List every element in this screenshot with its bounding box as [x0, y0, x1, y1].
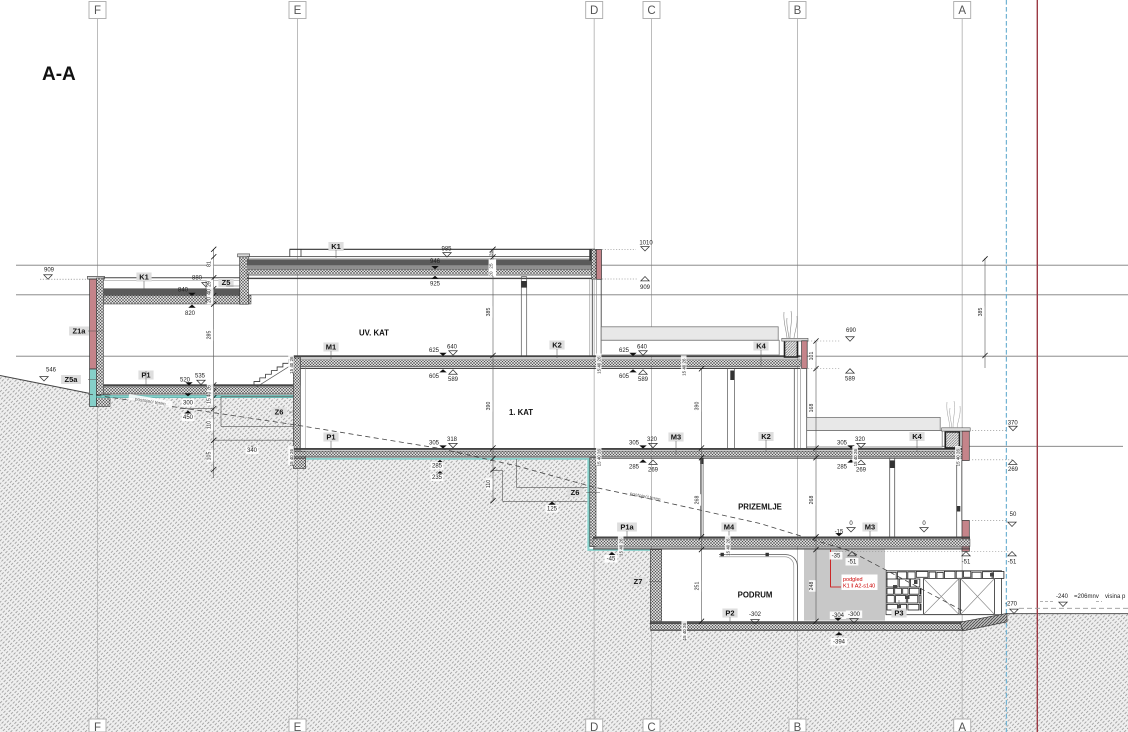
svg-text:390: 390 — [694, 402, 700, 411]
svg-text:K2: K2 — [552, 341, 562, 350]
svg-text:40: 40 — [207, 289, 213, 295]
svg-text:285: 285 — [432, 464, 443, 470]
svg-text:625: 625 — [619, 348, 630, 354]
svg-text:40: 40 — [726, 544, 731, 549]
svg-text:-302: -302 — [749, 612, 762, 618]
svg-text:15: 15 — [956, 461, 961, 466]
svg-text:690: 690 — [846, 328, 857, 334]
svg-text:268: 268 — [809, 496, 815, 505]
svg-text:269: 269 — [856, 467, 867, 473]
svg-text:15: 15 — [619, 550, 624, 555]
svg-text:40: 40 — [289, 362, 294, 367]
svg-text:PODRUM: PODRUM — [738, 591, 773, 600]
svg-text:589: 589 — [845, 377, 856, 383]
svg-text:M1: M1 — [326, 343, 336, 352]
svg-text:625: 625 — [429, 348, 440, 354]
svg-text:26: 26 — [597, 449, 602, 454]
svg-text:-300: -300 — [848, 612, 861, 618]
svg-text:110: 110 — [207, 421, 213, 429]
svg-text:110: 110 — [486, 480, 492, 488]
svg-text:=206mnv: =206mnv — [1074, 594, 1099, 600]
svg-text:305: 305 — [837, 441, 848, 447]
svg-text:visina p: visina p — [1105, 594, 1126, 600]
svg-text:1. KAT: 1. KAT — [509, 408, 533, 417]
svg-text:105: 105 — [207, 452, 213, 461]
svg-text:40: 40 — [289, 455, 294, 460]
svg-text:P2: P2 — [725, 609, 734, 618]
svg-text:605: 605 — [619, 374, 630, 380]
svg-text:269: 269 — [1008, 467, 1019, 473]
svg-text:26: 26 — [682, 623, 687, 628]
svg-text:P1: P1 — [326, 433, 335, 442]
svg-text:-45: -45 — [607, 557, 616, 563]
svg-text:K1: K1 — [331, 242, 341, 251]
svg-text:15: 15 — [207, 398, 213, 404]
svg-text:15: 15 — [289, 461, 294, 466]
svg-text:385: 385 — [486, 308, 492, 317]
svg-text:B: B — [794, 5, 802, 17]
svg-text:1010: 1010 — [639, 241, 653, 247]
svg-text:E: E — [294, 722, 302, 732]
svg-text:C: C — [647, 5, 655, 17]
svg-text:15: 15 — [289, 368, 294, 373]
svg-text:15: 15 — [682, 635, 687, 640]
svg-text:-394: -394 — [833, 640, 846, 646]
svg-text:26: 26 — [853, 449, 858, 454]
svg-text:251: 251 — [694, 582, 700, 591]
svg-text:-35: -35 — [832, 554, 841, 560]
svg-text:K1 ‖ A2-s140: K1 ‖ A2-s140 — [843, 584, 875, 590]
svg-text:K4: K4 — [912, 432, 922, 441]
svg-text:909: 909 — [44, 268, 55, 274]
svg-text:podgled: podgled — [843, 577, 863, 583]
svg-text:820: 820 — [185, 311, 196, 317]
svg-text:15: 15 — [853, 461, 858, 466]
svg-text:26: 26 — [956, 449, 961, 454]
svg-text:D: D — [590, 5, 598, 17]
svg-text:50: 50 — [1010, 512, 1017, 518]
svg-text:-51: -51 — [962, 560, 971, 566]
svg-text:Z1a: Z1a — [73, 327, 87, 336]
svg-text:40: 40 — [956, 455, 961, 460]
svg-text:26: 26 — [619, 538, 624, 543]
svg-text:-51: -51 — [1008, 560, 1017, 566]
svg-text:PRIZEMLJE: PRIZEMLJE — [738, 503, 782, 512]
svg-text:A-A: A-A — [42, 64, 76, 85]
svg-text:318: 318 — [447, 437, 458, 443]
svg-text:320: 320 — [647, 437, 658, 443]
svg-text:15: 15 — [682, 370, 687, 375]
svg-text:20: 20 — [207, 297, 213, 303]
svg-text:269: 269 — [648, 467, 659, 473]
svg-text:535: 535 — [195, 374, 206, 380]
svg-text:840: 840 — [178, 288, 189, 294]
svg-text:Z7: Z7 — [634, 577, 643, 586]
svg-text:925: 925 — [430, 282, 441, 288]
svg-text:640: 640 — [637, 344, 648, 350]
svg-text:Z5a: Z5a — [65, 375, 79, 384]
svg-text:40: 40 — [619, 544, 624, 549]
svg-text:15: 15 — [597, 368, 602, 373]
svg-text:M3: M3 — [671, 433, 681, 442]
svg-text:305: 305 — [429, 441, 440, 447]
svg-text:A: A — [958, 5, 966, 17]
svg-text:K2: K2 — [761, 432, 771, 441]
svg-text:909: 909 — [640, 285, 651, 291]
svg-text:370: 370 — [1008, 421, 1019, 427]
svg-text:Z6: Z6 — [275, 408, 284, 417]
svg-text:E: E — [294, 5, 302, 17]
svg-text:29: 29 — [207, 281, 213, 287]
svg-text:946: 946 — [430, 259, 441, 265]
svg-text:589: 589 — [448, 377, 459, 383]
svg-text:26: 26 — [488, 251, 493, 257]
svg-text:285: 285 — [629, 464, 640, 470]
svg-text:248: 248 — [809, 582, 815, 591]
svg-text:880: 880 — [192, 276, 203, 282]
svg-text:300: 300 — [183, 401, 194, 407]
svg-text:390: 390 — [486, 402, 492, 411]
svg-text:K4: K4 — [756, 342, 766, 351]
svg-text:40: 40 — [207, 392, 213, 398]
svg-text:M4: M4 — [724, 523, 735, 532]
svg-text:40: 40 — [597, 455, 602, 460]
svg-text:268: 268 — [694, 496, 700, 505]
svg-text:125: 125 — [547, 507, 558, 513]
svg-text:F: F — [94, 5, 101, 17]
svg-text:285: 285 — [207, 331, 213, 340]
svg-text:P1a: P1a — [620, 523, 634, 532]
svg-text:101: 101 — [809, 352, 815, 361]
svg-text:546: 546 — [46, 368, 57, 374]
svg-text:26: 26 — [289, 449, 294, 454]
svg-text:26: 26 — [289, 356, 294, 361]
svg-text:-51: -51 — [848, 560, 857, 566]
svg-text:K1: K1 — [139, 273, 149, 282]
svg-text:985: 985 — [441, 247, 452, 253]
svg-text:40: 40 — [853, 455, 858, 460]
svg-text:40: 40 — [682, 629, 687, 634]
svg-text:605: 605 — [429, 374, 440, 380]
svg-text:D: D — [590, 722, 598, 732]
svg-text:235: 235 — [432, 475, 443, 481]
svg-text:450: 450 — [183, 415, 194, 421]
svg-text:385: 385 — [978, 308, 984, 317]
svg-text:305: 305 — [629, 441, 640, 447]
svg-text:F: F — [94, 722, 101, 732]
svg-text:40: 40 — [682, 364, 687, 369]
svg-text:589: 589 — [638, 377, 649, 383]
svg-text:340: 340 — [247, 448, 258, 454]
svg-text:20: 20 — [488, 271, 493, 277]
svg-text:A: A — [958, 722, 966, 732]
svg-text:B: B — [794, 722, 802, 732]
svg-text:25: 25 — [488, 263, 493, 269]
svg-text:P3: P3 — [894, 609, 903, 618]
svg-text:-270: -270 — [1005, 602, 1018, 608]
svg-text:26: 26 — [726, 538, 731, 543]
svg-text:168: 168 — [809, 404, 815, 413]
svg-text:285: 285 — [837, 464, 848, 470]
svg-text:M3: M3 — [865, 523, 875, 532]
svg-text:UV. KAT: UV. KAT — [359, 329, 389, 338]
svg-text:26: 26 — [682, 358, 687, 363]
svg-text:640: 640 — [447, 344, 458, 350]
svg-text:26: 26 — [597, 356, 602, 361]
svg-text:-15: -15 — [835, 530, 844, 536]
svg-text:15: 15 — [597, 461, 602, 466]
svg-text:26: 26 — [207, 385, 213, 391]
svg-text:40: 40 — [597, 362, 602, 367]
svg-text:-240: -240 — [1056, 594, 1069, 600]
svg-text:320: 320 — [855, 437, 866, 443]
svg-text:C: C — [647, 722, 655, 732]
svg-text:15: 15 — [726, 550, 731, 555]
svg-text:81: 81 — [207, 261, 213, 267]
svg-text:Z6: Z6 — [571, 488, 580, 497]
